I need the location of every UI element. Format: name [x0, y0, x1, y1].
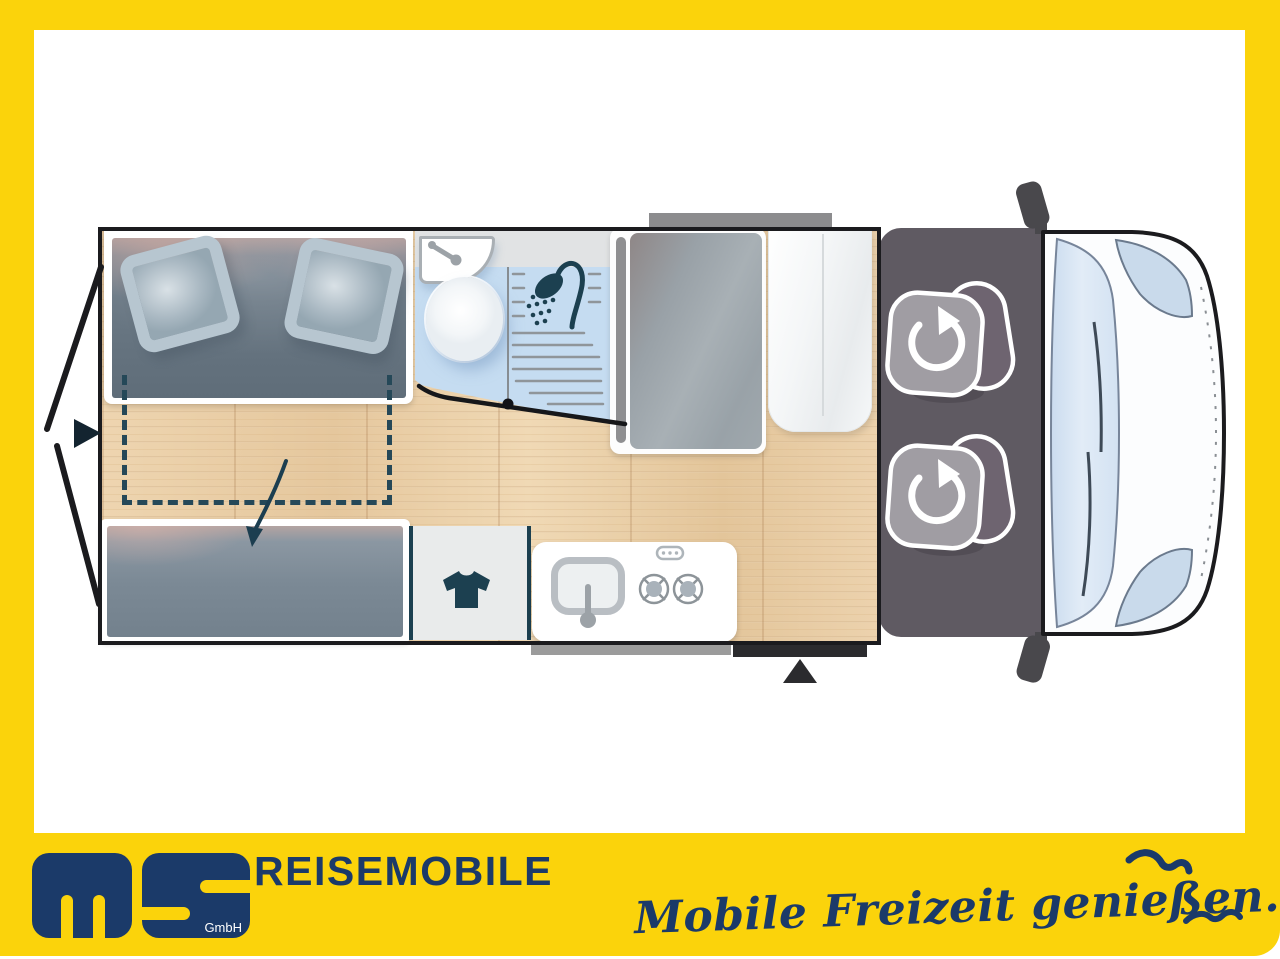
logo-gmbh-label: GmbH [204, 920, 242, 935]
ms-logo: GmbH [32, 851, 262, 943]
wiper [1094, 322, 1101, 452]
wing-mirror-icon [1014, 633, 1052, 684]
wiper [1083, 452, 1090, 596]
logo-letter-m [32, 853, 132, 938]
van-front [1043, 232, 1224, 634]
logo-slot [142, 907, 190, 920]
side-window [1116, 240, 1192, 317]
entry-step [531, 644, 731, 655]
logo-letter-s: GmbH [142, 853, 250, 938]
advert-page: GmbH REISEMOBILE Mobile Freizeit genieße… [0, 0, 1280, 959]
logo-slot [200, 880, 250, 893]
wordmark-reisemobile: REISEMOBILE [254, 851, 553, 892]
van-body-wall [98, 227, 881, 645]
windshield [1051, 239, 1119, 627]
frame-right-bar [1245, 0, 1280, 833]
frame-left-bar [0, 0, 34, 833]
side-window [1116, 549, 1192, 626]
logo-slot [61, 895, 73, 940]
entry-arrow-icon [783, 659, 817, 683]
rear-doors-open-icon [47, 267, 101, 604]
driver-cab [879, 228, 1045, 637]
hood-seam [1201, 287, 1216, 579]
sliding-door-step [733, 644, 867, 657]
frame-top-bar [0, 0, 1280, 30]
wing-mirror-icon [1014, 179, 1052, 230]
logo-slot [93, 895, 105, 940]
